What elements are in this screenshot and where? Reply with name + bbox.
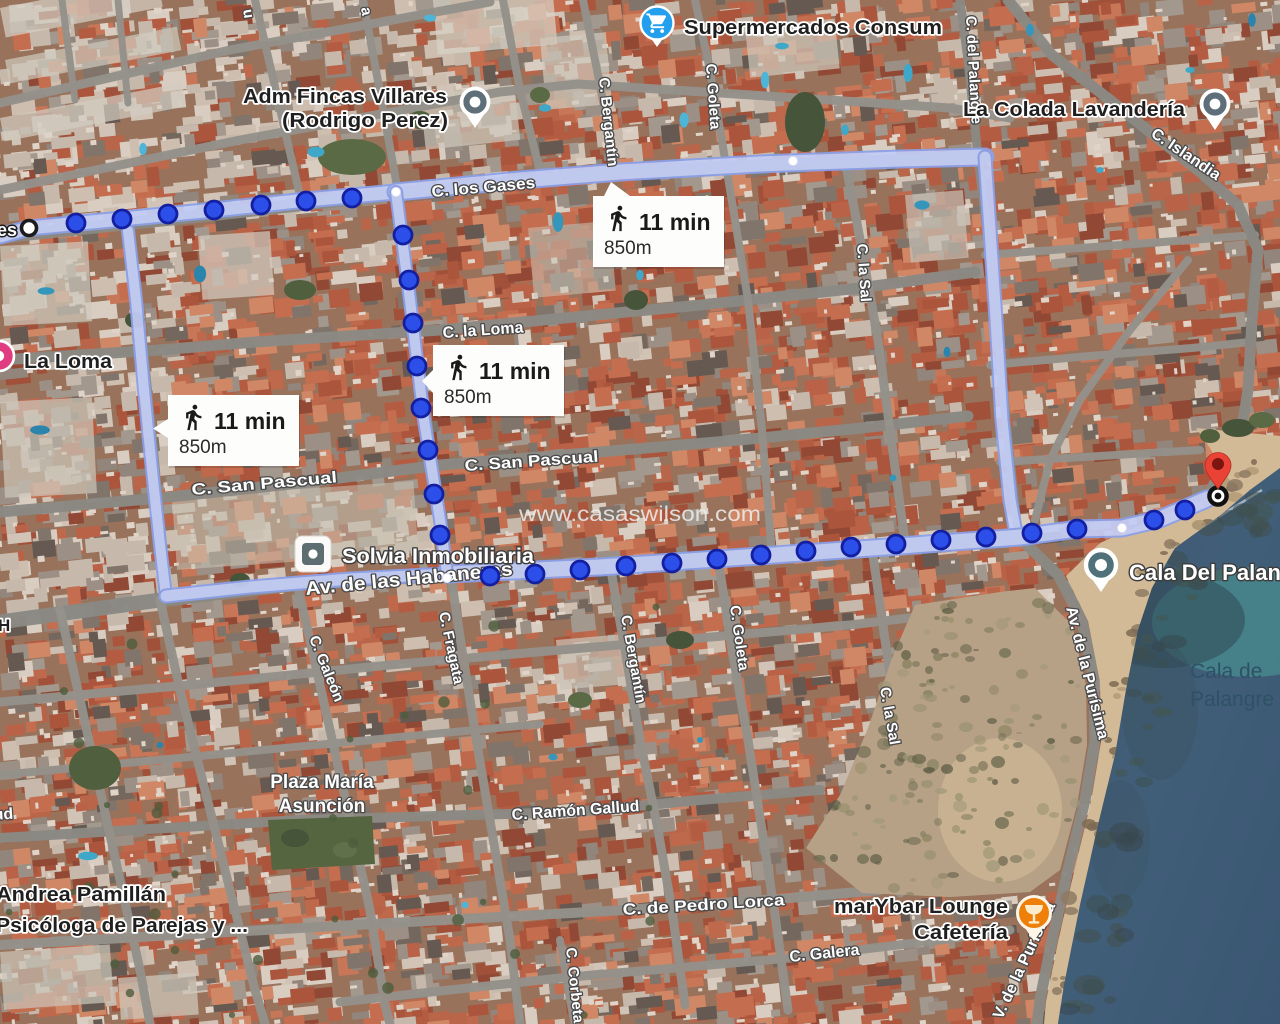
svg-text:La Loma: La Loma bbox=[24, 351, 113, 373]
svg-text:Supermercados Consum: Supermercados Consum bbox=[684, 17, 942, 39]
svg-text:850m: 850m bbox=[604, 238, 652, 259]
svg-text:Andrea Pamillán: Andrea Pamillán bbox=[0, 884, 166, 906]
svg-text:Palangre: Palangre bbox=[1190, 688, 1274, 711]
svg-text:Asunción: Asunción bbox=[279, 796, 366, 817]
svg-text:(Rodrigo Perez): (Rodrigo Perez) bbox=[282, 110, 448, 132]
svg-text:11 min: 11 min bbox=[214, 408, 286, 434]
svg-text:Psicóloga de Parejas y ...: Psicóloga de Parejas y ... bbox=[0, 915, 248, 937]
svg-text:www.casaswilson.com: www.casaswilson.com bbox=[518, 503, 761, 526]
svg-text:ud: ud bbox=[0, 806, 14, 824]
svg-text:850m: 850m bbox=[444, 387, 492, 408]
svg-text:11 min: 11 min bbox=[639, 209, 711, 235]
svg-text:marYbar Lounge: marYbar Lounge bbox=[834, 896, 1008, 918]
svg-text:Solvia Inmobiliaria: Solvia Inmobiliaria bbox=[342, 545, 534, 568]
svg-text:Cala Del Palan: Cala Del Palan bbox=[1129, 560, 1280, 585]
svg-text:850m: 850m bbox=[179, 437, 227, 458]
svg-text:11 min: 11 min bbox=[479, 358, 551, 384]
svg-text:H: H bbox=[0, 616, 10, 635]
svg-text:La Colada Lavandería: La Colada Lavandería bbox=[963, 99, 1186, 121]
svg-text:Plaza María: Plaza María bbox=[270, 772, 374, 793]
svg-text:es: es bbox=[0, 220, 17, 240]
svg-text:Adm Fincas Villares: Adm Fincas Villares bbox=[243, 86, 447, 108]
svg-text:Cafetería: Cafetería bbox=[914, 922, 1009, 944]
svg-text:Cala de: Cala de bbox=[1190, 660, 1262, 683]
